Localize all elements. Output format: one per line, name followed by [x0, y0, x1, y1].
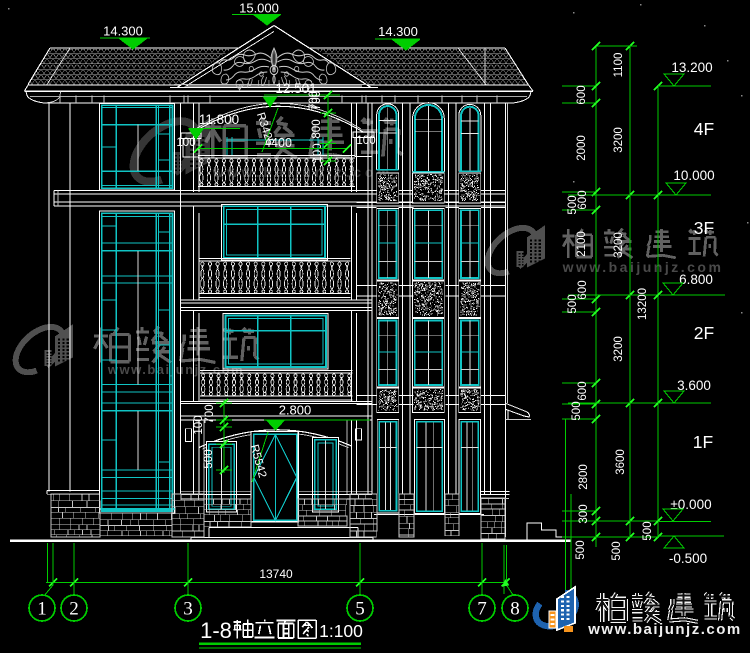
svg-text:100: 100 [193, 415, 205, 434]
svg-text:3: 3 [183, 599, 193, 620]
svg-text:1: 1 [37, 599, 47, 620]
svg-text:500: 500 [575, 540, 587, 559]
svg-text:2.800: 2.800 [279, 403, 312, 418]
svg-text:500: 500 [203, 449, 215, 468]
svg-text:700: 700 [204, 404, 216, 423]
svg-text:-0.500: -0.500 [669, 551, 707, 566]
svg-text:14.300: 14.300 [103, 24, 143, 39]
svg-text:www.baijunjz.com: www.baijunjz.com [212, 165, 394, 180]
svg-text:1:100: 1:100 [319, 621, 363, 641]
svg-text:500: 500 [611, 541, 623, 560]
svg-text:±0.000: ±0.000 [670, 497, 711, 512]
svg-text:1100: 1100 [613, 53, 625, 78]
svg-text:10.000: 10.000 [673, 168, 714, 183]
svg-text:3600: 3600 [615, 449, 627, 475]
svg-text:4F: 4F [694, 119, 714, 139]
svg-text:15.000: 15.000 [239, 1, 279, 16]
svg-text:300: 300 [578, 504, 590, 523]
svg-text:2100: 2100 [576, 231, 588, 257]
svg-text:5: 5 [355, 599, 365, 620]
svg-text:1-8: 1-8 [200, 618, 232, 643]
svg-text:14.300: 14.300 [378, 24, 418, 39]
svg-text:600: 600 [576, 85, 588, 104]
svg-text:www.baijunjz.com: www.baijunjz.com [587, 621, 741, 638]
svg-text:2000: 2000 [576, 135, 588, 161]
svg-text:100: 100 [312, 143, 324, 162]
svg-text:800: 800 [311, 119, 323, 138]
svg-text:3200: 3200 [613, 127, 625, 153]
svg-text:11.800: 11.800 [199, 112, 239, 127]
svg-text:100: 100 [356, 135, 375, 147]
svg-text:1F: 1F [693, 432, 713, 452]
svg-text:7: 7 [477, 599, 487, 620]
svg-text:8: 8 [510, 599, 520, 620]
svg-text:13.200: 13.200 [671, 60, 712, 75]
svg-text:100: 100 [176, 137, 195, 149]
svg-text:3200: 3200 [613, 232, 625, 258]
svg-text:700: 700 [311, 91, 323, 110]
svg-text:500: 500 [567, 294, 579, 313]
svg-text:500: 500 [642, 521, 654, 540]
svg-text:2: 2 [69, 599, 79, 620]
svg-text:500: 500 [567, 195, 579, 214]
svg-text:2800: 2800 [578, 464, 590, 490]
svg-text:3F: 3F [694, 218, 714, 238]
svg-text:6.800: 6.800 [679, 272, 713, 287]
svg-text:3200: 3200 [613, 336, 625, 362]
svg-text:2F: 2F [694, 323, 714, 343]
svg-text:13740: 13740 [259, 567, 293, 581]
svg-text:13200: 13200 [637, 288, 649, 320]
svg-text:500: 500 [571, 401, 583, 420]
svg-text:600: 600 [577, 381, 589, 400]
